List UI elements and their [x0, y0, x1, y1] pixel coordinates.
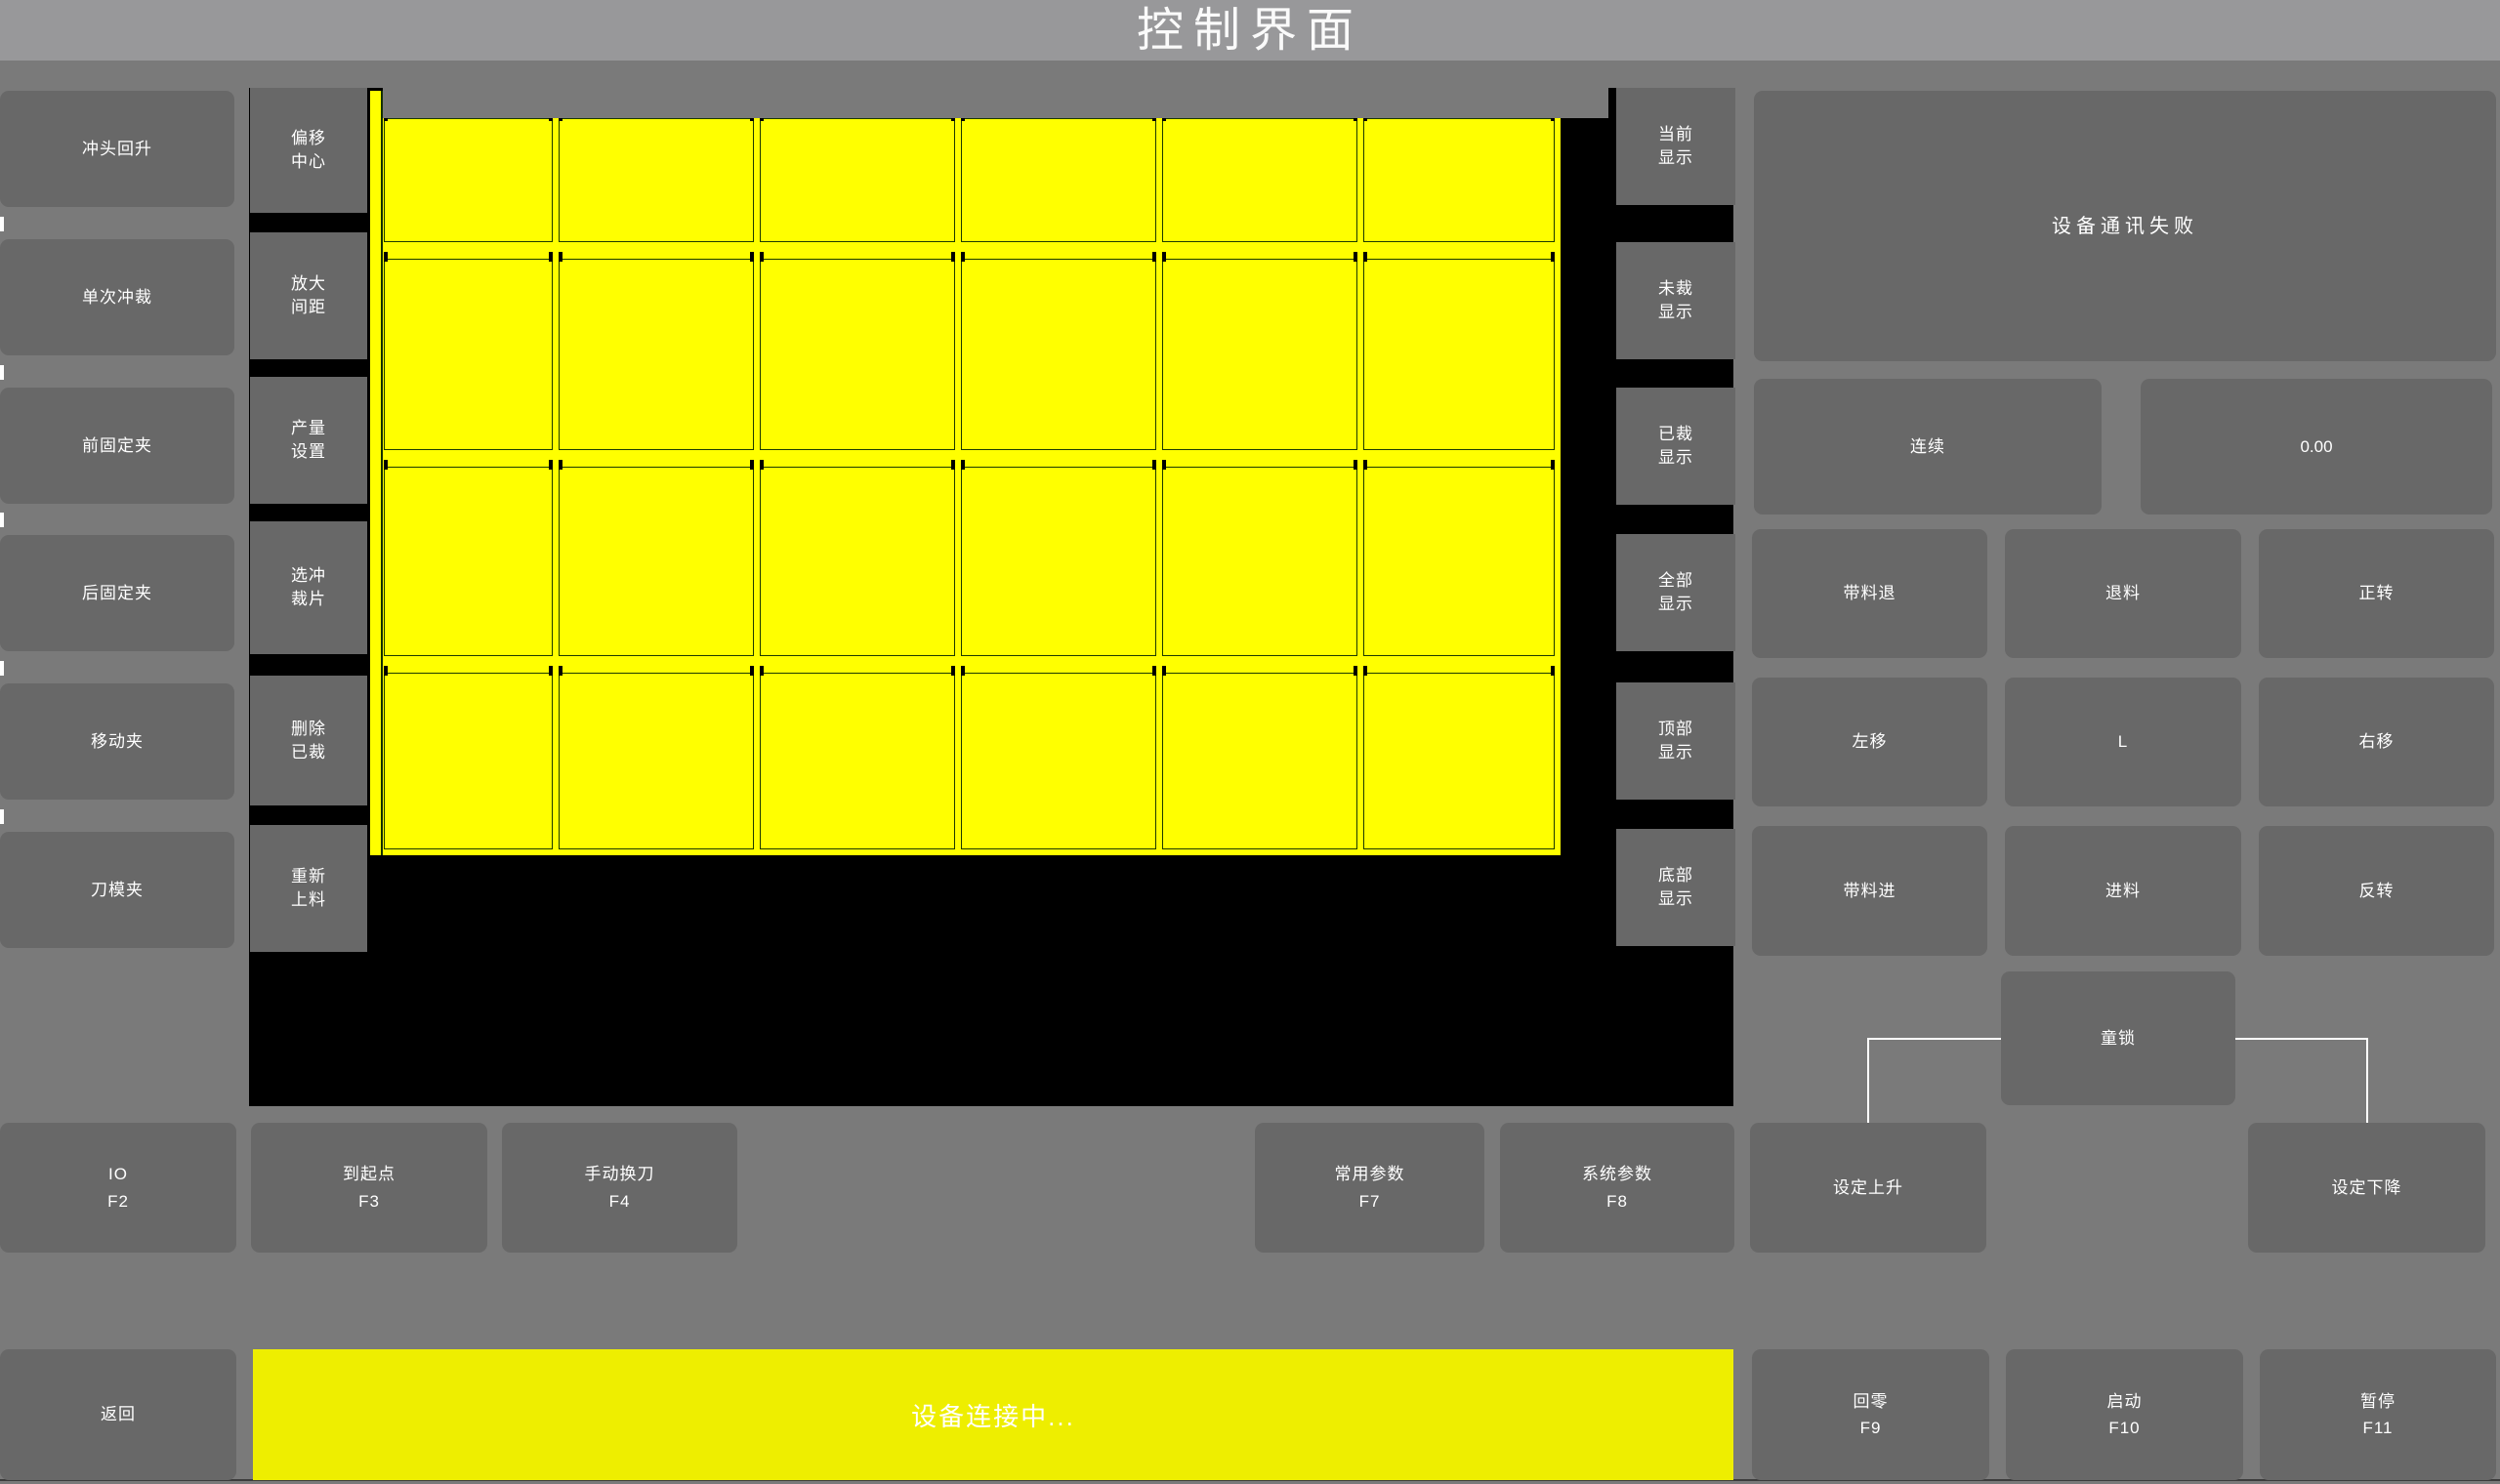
button-io-f2[interactable]: IO F2	[0, 1123, 236, 1253]
nest-piece[interactable]	[559, 467, 754, 656]
button-moving-clamp[interactable]: 移动夹	[0, 683, 234, 800]
button-die-clamp[interactable]: 刀模夹	[0, 832, 234, 948]
nest-piece[interactable]	[760, 467, 955, 656]
button-rotate-reverse[interactable]: 反转	[2259, 826, 2494, 956]
nest-piece[interactable]	[760, 673, 955, 849]
button-label: 底部 显示	[1658, 864, 1693, 911]
edge-tick	[0, 365, 4, 380]
nest-piece[interactable]	[1162, 118, 1357, 242]
button-label: 右移	[2359, 728, 2395, 755]
edge-tick	[0, 661, 4, 676]
nest-piece[interactable]	[1162, 467, 1357, 656]
button-label: 暂停	[2360, 1388, 2396, 1415]
nest-piece[interactable]	[1162, 673, 1357, 849]
value-text: 0.00	[2300, 433, 2332, 460]
button-label: 进料	[2105, 878, 2141, 904]
button-label: 顶部 显示	[1658, 718, 1693, 764]
button-common-params-f7[interactable]: 常用参数 F7	[1255, 1123, 1484, 1253]
button-label: 系统参数	[1582, 1161, 1652, 1187]
nest-piece[interactable]	[559, 673, 754, 849]
value-display: 0.00	[2141, 379, 2492, 515]
button-punch-raise[interactable]: 冲头回升	[0, 91, 234, 207]
nest-piece[interactable]	[1363, 118, 1555, 242]
nest-piece[interactable]	[1363, 259, 1555, 450]
button-label: 冲头回升	[82, 136, 152, 162]
nest-piece[interactable]	[1363, 673, 1555, 849]
nest-piece[interactable]	[1363, 467, 1555, 656]
button-eject-material[interactable]: 退料	[2005, 529, 2241, 658]
button-reload-material[interactable]: 重新 上料	[250, 825, 367, 952]
button-label: 移动夹	[91, 728, 144, 755]
fkey-label: F10	[2108, 1415, 2140, 1441]
button-label: 手动换刀	[585, 1161, 655, 1187]
alarm-message: 设备通讯失败	[2052, 211, 2198, 242]
button-label: 到起点	[343, 1161, 396, 1187]
child-lock-button[interactable]: 童锁	[2001, 971, 2235, 1105]
nest-piece[interactable]	[559, 118, 754, 242]
button-offset-center[interactable]: 偏移 中心	[250, 88, 367, 213]
nest-piece[interactable]	[384, 118, 553, 242]
nest-piece[interactable]	[384, 467, 553, 656]
nest-piece[interactable]	[961, 467, 1156, 656]
button-label: 启动	[2107, 1388, 2143, 1415]
button-delete-cut[interactable]: 删除 已裁	[250, 676, 367, 805]
status-text: 设备连接中...	[911, 1397, 1075, 1433]
button-label: IO	[108, 1161, 128, 1187]
fkey-label: F7	[1359, 1188, 1381, 1215]
button-label: 选冲 裁片	[291, 564, 326, 611]
nest-piece[interactable]	[1162, 259, 1357, 450]
button-show-top[interactable]: 顶部 显示	[1616, 682, 1735, 800]
button-show-uncut[interactable]: 未裁 显示	[1616, 242, 1735, 359]
button-label: 设定上升	[1833, 1175, 1903, 1201]
back-button[interactable]: 返回	[0, 1349, 236, 1480]
button-feed-back-with-material[interactable]: 带料退	[1752, 529, 1987, 658]
button-label: 未裁 显示	[1658, 277, 1693, 324]
button-label: 前固定夹	[82, 433, 152, 459]
jog-grid: 带料退 退料 正转 左移 L 右移 带料进 进料 反转	[1752, 529, 2494, 956]
fkey-label: F11	[2362, 1415, 2393, 1441]
canvas-top-cover	[383, 88, 1608, 118]
link-line	[1867, 1038, 1869, 1133]
status-banner: 设备连接中...	[253, 1349, 1733, 1480]
edge-tick	[0, 809, 4, 824]
fkey-label: F2	[107, 1188, 129, 1215]
button-label: 后固定夹	[82, 580, 152, 606]
button-yield-settings[interactable]: 产量 设置	[250, 377, 367, 504]
button-label: 全部 显示	[1658, 569, 1693, 616]
button-front-clamp[interactable]: 前固定夹	[0, 388, 234, 504]
button-label: 反转	[2359, 878, 2395, 904]
button-label: 带料进	[1844, 878, 1896, 904]
nest-piece[interactable]	[961, 259, 1156, 450]
button-single-punch[interactable]: 单次冲裁	[0, 239, 234, 355]
button-show-bottom[interactable]: 底部 显示	[1616, 829, 1735, 946]
button-label: 回零	[1854, 1388, 1889, 1415]
button-label: 偏移 中心	[291, 127, 326, 174]
button-label: 设定下降	[2332, 1175, 2402, 1201]
button-label: 正转	[2359, 580, 2395, 606]
nest-piece[interactable]	[760, 118, 955, 242]
title-bar: 控制界面	[0, 0, 2500, 61]
button-label: 单次冲裁	[82, 284, 152, 310]
button-label: 重新 上料	[291, 865, 326, 912]
button-to-origin-f3[interactable]: 到起点 F3	[251, 1123, 487, 1253]
button-home-f9[interactable]: 回零 F9	[1752, 1349, 1989, 1480]
fkey-label: F9	[1860, 1415, 1882, 1441]
button-label: 当前 显示	[1658, 123, 1693, 170]
button-system-params-f8[interactable]: 系统参数 F8	[1500, 1123, 1734, 1253]
button-label: 左移	[1853, 728, 1888, 755]
button-show-current[interactable]: 当前 显示	[1616, 88, 1735, 205]
nest-piece[interactable]	[961, 673, 1156, 849]
edge-tick	[0, 513, 4, 527]
nest-piece[interactable]	[384, 259, 553, 450]
button-label: 放大 间距	[291, 272, 326, 319]
button-label: 常用参数	[1335, 1161, 1405, 1187]
fkey-label: F4	[609, 1188, 631, 1215]
button-label: 连续	[1910, 433, 1945, 460]
button-rear-clamp[interactable]: 后固定夹	[0, 535, 234, 651]
nest-piece[interactable]	[384, 673, 553, 849]
button-l[interactable]: L	[2005, 678, 2241, 806]
button-label: 已裁 显示	[1658, 423, 1693, 470]
nest-piece[interactable]	[559, 259, 754, 450]
button-manual-tool-change-f4[interactable]: 手动换刀 F4	[502, 1123, 737, 1253]
button-label: 带料退	[1844, 580, 1896, 606]
button-label: 删除 已裁	[291, 718, 326, 764]
button-select-piece[interactable]: 选冲 裁片	[250, 521, 367, 654]
button-label: 童锁	[2101, 1025, 2136, 1051]
button-label: 刀模夹	[91, 877, 144, 903]
fkey-label: F8	[1606, 1188, 1628, 1215]
nest-piece[interactable]	[961, 118, 1156, 242]
button-label: 返回	[101, 1401, 136, 1427]
button-feed-in-with-material[interactable]: 带料进	[1752, 826, 1987, 956]
alarm-message-box: 设备通讯失败	[1754, 91, 2496, 361]
button-pause-f11[interactable]: 暂停 F11	[2260, 1349, 2496, 1480]
edge-tick	[0, 217, 4, 231]
button-label: 产量 设置	[291, 417, 326, 464]
button-label: L	[2118, 728, 2128, 755]
button-enlarge-spacing[interactable]: 放大 间距	[250, 232, 367, 359]
nest-sheet	[370, 91, 1561, 855]
button-move-left[interactable]: 左移	[1752, 678, 1987, 806]
button-set-rise[interactable]: 设定上升	[1750, 1123, 1986, 1253]
button-label: 退料	[2105, 580, 2141, 606]
button-show-all[interactable]: 全部 显示	[1616, 534, 1735, 651]
fkey-label: F3	[358, 1188, 380, 1215]
link-line	[2366, 1038, 2368, 1133]
page-title: 控制界面	[0, 0, 2500, 62]
sheet-edge-line	[381, 91, 383, 855]
nest-piece[interactable]	[760, 259, 955, 450]
button-feed-material[interactable]: 进料	[2005, 826, 2241, 956]
button-set-fall[interactable]: 设定下降	[2248, 1123, 2485, 1253]
button-start-f10[interactable]: 启动 F10	[2006, 1349, 2243, 1480]
continuous-mode-button[interactable]: 连续	[1754, 379, 2102, 515]
button-move-right[interactable]: 右移	[2259, 678, 2494, 806]
button-rotate-forward[interactable]: 正转	[2259, 529, 2494, 658]
button-show-cut[interactable]: 已裁 显示	[1616, 388, 1735, 505]
